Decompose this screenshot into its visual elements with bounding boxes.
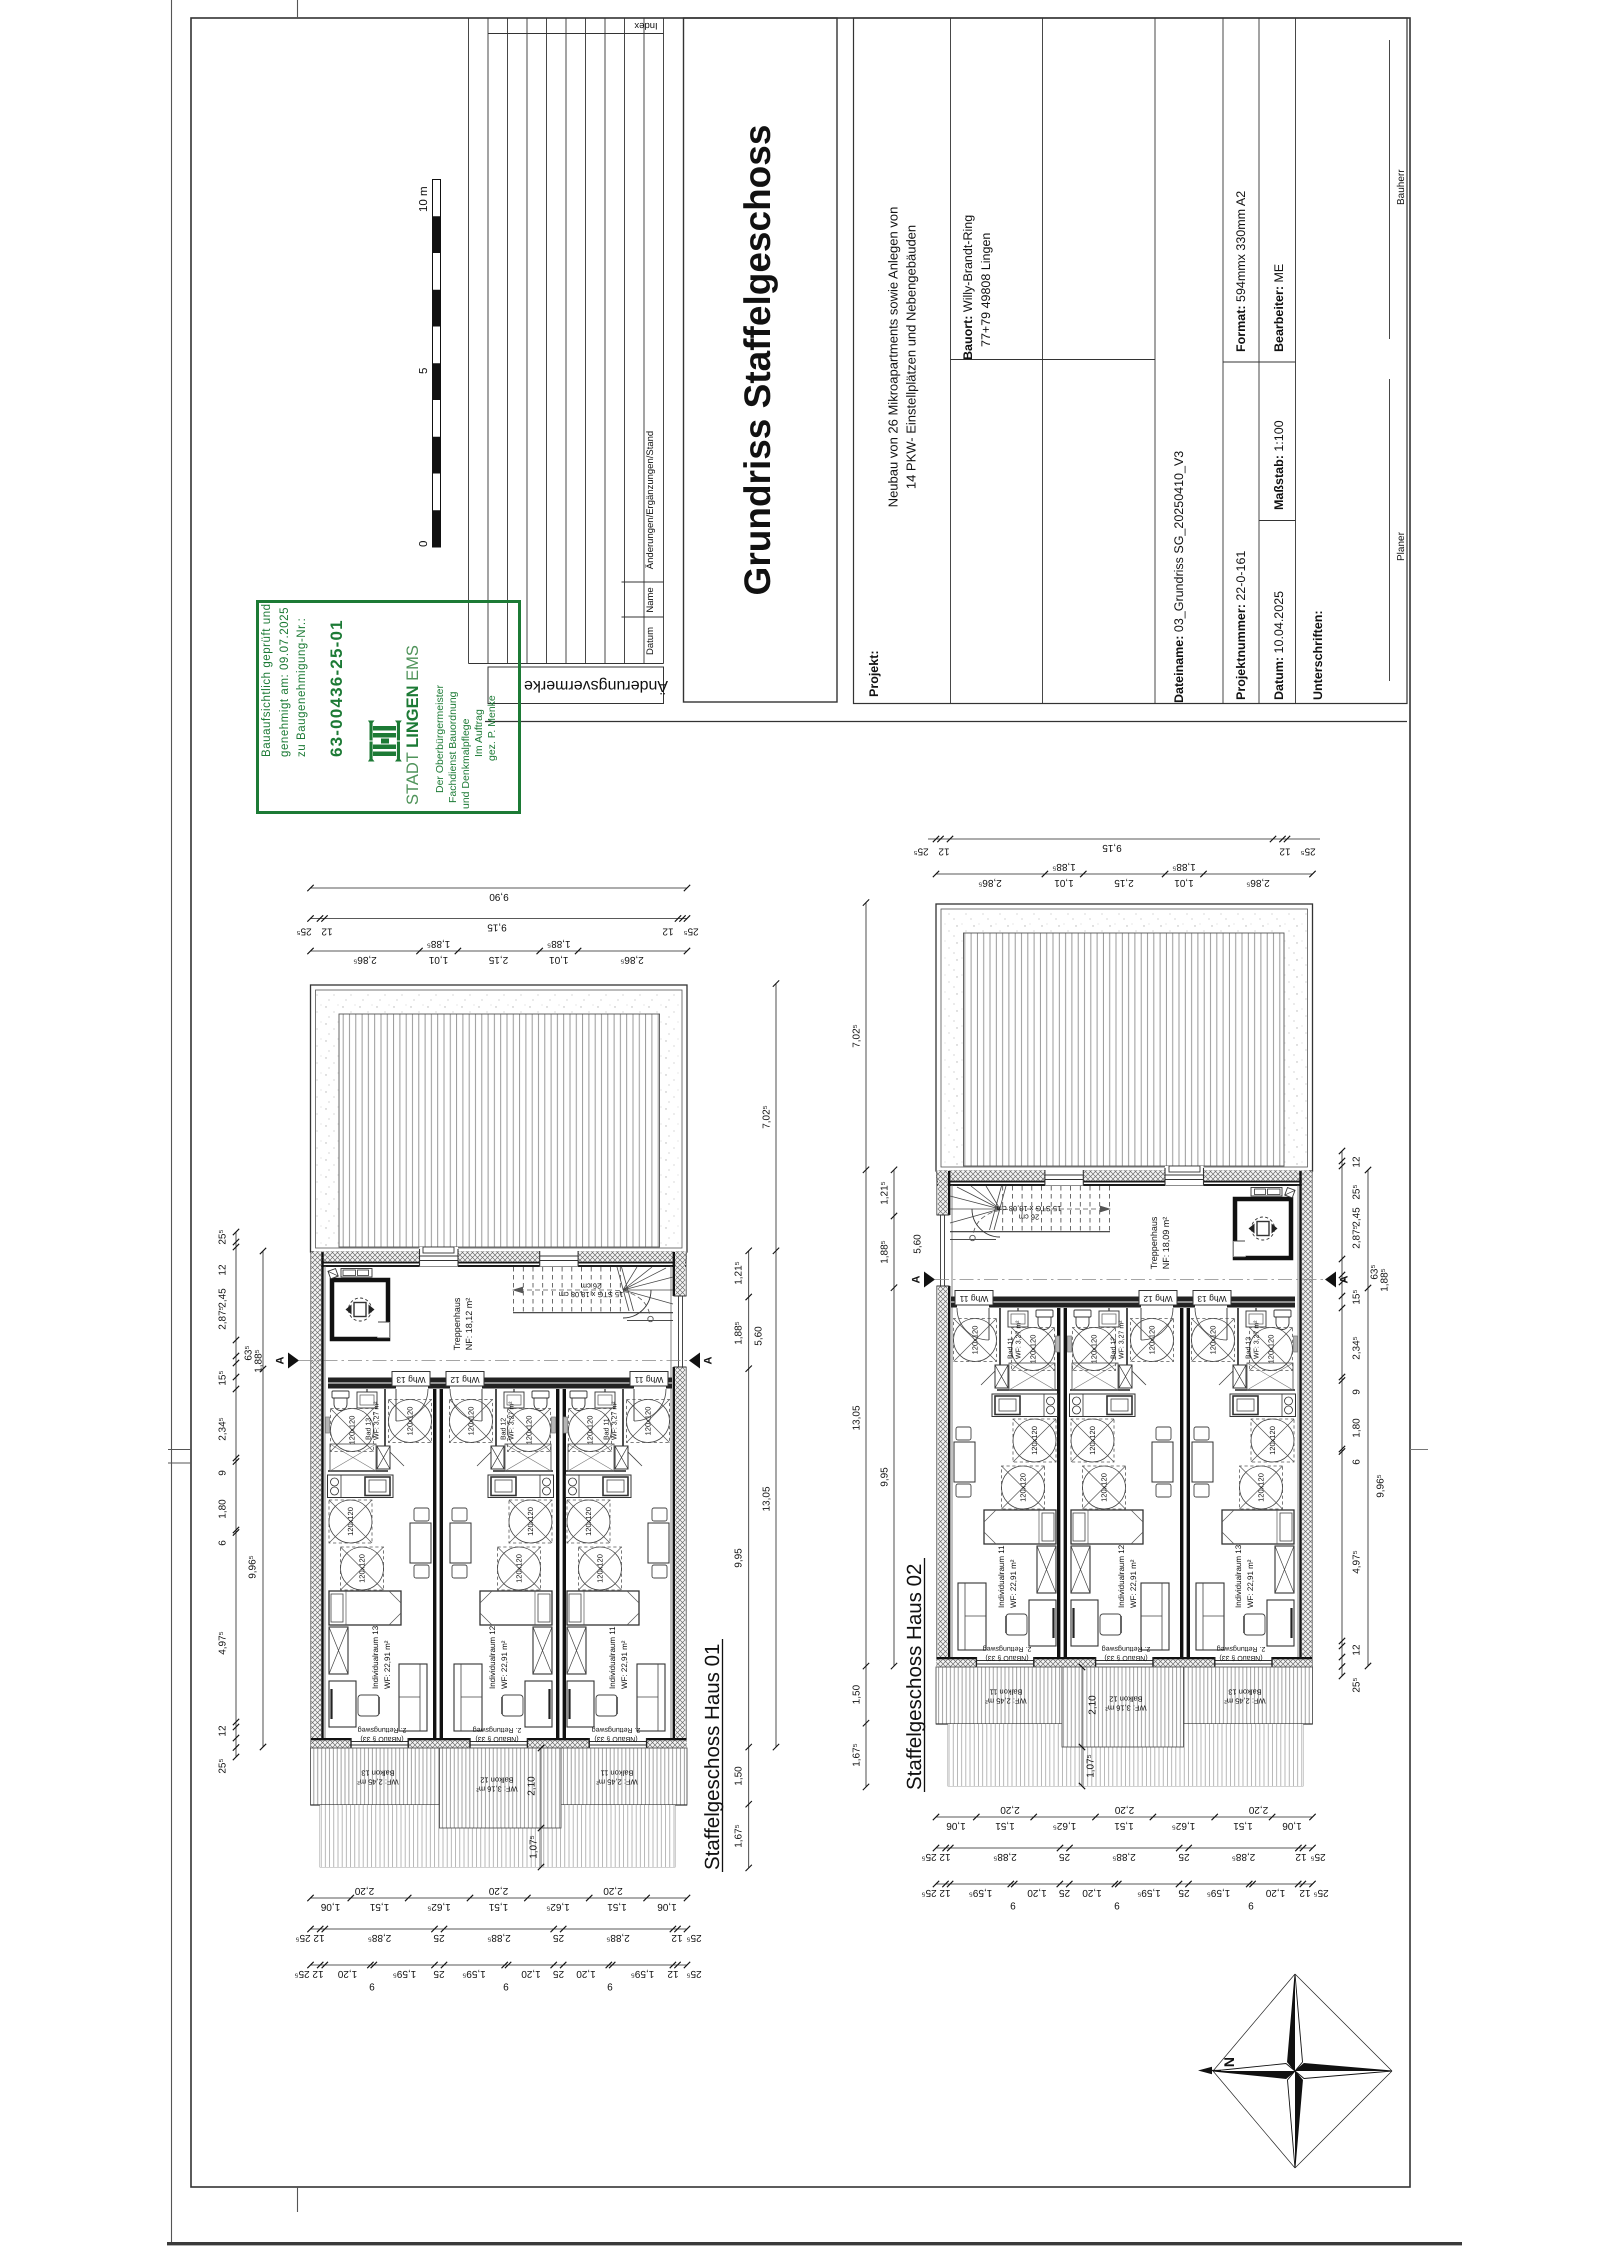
svg-text:NF: 18,12 m²: NF: 18,12 m² <box>464 1298 474 1351</box>
svg-text:25⁵: 25⁵ <box>217 1229 228 1244</box>
svg-text:Bad 12: Bad 12 <box>1110 1337 1118 1359</box>
svg-text:1,20: 1,20 <box>1265 1887 1285 1898</box>
svg-text:2,86⁵: 2,86⁵ <box>1246 877 1270 888</box>
svg-text:Whg 13: Whg 13 <box>1197 1294 1227 1304</box>
svg-text:1,88⁵: 1,88⁵ <box>427 938 451 949</box>
svg-text:1,06: 1,06 <box>657 1901 677 1912</box>
svg-text:1,59⁵: 1,59⁵ <box>1207 1887 1231 1898</box>
svg-text:Individualraum 13: Individualraum 13 <box>1234 1544 1243 1608</box>
svg-text:2,20: 2,20 <box>1000 1804 1020 1815</box>
svg-text:25: 25 <box>1178 1887 1190 1898</box>
svg-text:Individualraum 12: Individualraum 12 <box>1117 1544 1126 1608</box>
svg-text:Dateiname: 03_Grundriss SG_202: Dateiname: 03_Grundriss SG_20250410_V3 <box>1172 451 1186 703</box>
svg-text:1,07⁵: 1,07⁵ <box>1085 1754 1096 1778</box>
svg-text:1,06: 1,06 <box>320 1901 340 1912</box>
svg-text:120x120: 120x120 <box>466 1407 475 1436</box>
svg-text:(NBauO § 33): (NBauO § 33) <box>1104 1654 1147 1662</box>
svg-text:2,34⁵: 2,34⁵ <box>217 1417 228 1441</box>
svg-text:5,60: 5,60 <box>753 1326 764 1346</box>
svg-text:26 cm: 26 cm <box>581 1281 601 1290</box>
svg-text:2,88⁵: 2,88⁵ <box>1232 1851 1256 1862</box>
svg-text:1,06: 1,06 <box>1282 1820 1302 1831</box>
svg-text:25⁵: 25⁵ <box>217 1758 228 1773</box>
svg-text:12: 12 <box>1351 1644 1362 1656</box>
svg-text:Balkon 13: Balkon 13 <box>361 1769 394 1778</box>
svg-text:2,88⁵: 2,88⁵ <box>487 1932 511 1943</box>
svg-text:2,15: 2,15 <box>1114 877 1134 888</box>
svg-text:120x120: 120x120 <box>970 1326 979 1355</box>
svg-text:9: 9 <box>607 1980 613 1991</box>
svg-text:WF: 3,16 m²: WF: 3,16 m² <box>476 1785 518 1794</box>
svg-text:Balkon 12: Balkon 12 <box>1109 1695 1142 1704</box>
svg-text:1,50: 1,50 <box>851 1684 862 1704</box>
svg-text:1,62⁵: 1,62⁵ <box>1172 1820 1196 1831</box>
svg-text:1,80: 1,80 <box>1351 1418 1362 1438</box>
svg-text:9: 9 <box>503 1980 509 1991</box>
svg-text:14 PKW- Einstellplätzen und Ne: 14 PKW- Einstellplätzen und Nebengebäude… <box>903 225 918 489</box>
svg-text:2,20: 2,20 <box>603 1885 623 1896</box>
svg-text:12: 12 <box>321 925 333 936</box>
svg-text:WF: 2,45 m²: WF: 2,45 m² <box>596 1778 638 1787</box>
svg-text:4,97⁵: 4,97⁵ <box>217 1631 228 1655</box>
svg-text:25⁵: 25⁵ <box>1300 845 1315 856</box>
svg-text:9,15: 9,15 <box>1102 842 1122 853</box>
svg-text:1,67⁵: 1,67⁵ <box>851 1743 862 1767</box>
svg-text:12: 12 <box>1279 845 1291 856</box>
svg-text:2,45: 2,45 <box>1351 1207 1362 1227</box>
svg-text:2,20: 2,20 <box>488 1885 508 1896</box>
svg-text:1,51: 1,51 <box>369 1901 389 1912</box>
svg-text:1,20: 1,20 <box>1082 1887 1102 1898</box>
svg-text:Treppenhaus: Treppenhaus <box>1149 1216 1159 1269</box>
svg-text:(NBauO § 33): (NBauO § 33) <box>1219 1654 1262 1662</box>
svg-text:1,20: 1,20 <box>1027 1887 1047 1898</box>
svg-text:120x120: 120x120 <box>347 1416 356 1445</box>
svg-text:120x120: 120x120 <box>1089 1335 1098 1364</box>
svg-text:1,88⁵: 1,88⁵ <box>1172 861 1196 872</box>
svg-text:Whg 11: Whg 11 <box>634 1375 663 1385</box>
svg-text:9,95: 9,95 <box>733 1548 744 1568</box>
svg-text:0: 0 <box>418 541 430 547</box>
svg-text:9: 9 <box>1010 1899 1016 1910</box>
svg-text:Maßstab: 1:100: Maßstab: 1:100 <box>1272 420 1286 510</box>
svg-text:25⁵: 25⁵ <box>686 1968 701 1979</box>
svg-text:2,86⁵: 2,86⁵ <box>620 954 644 965</box>
svg-text:Bad 13: Bad 13 <box>1245 1337 1253 1359</box>
svg-text:2,45: 2,45 <box>217 1288 228 1308</box>
svg-text:Bad 11: Bad 11 <box>603 1418 611 1440</box>
svg-text:25⁵: 25⁵ <box>296 925 311 936</box>
svg-text:2. Rettungsweg: 2. Rettungsweg <box>592 1726 641 1733</box>
svg-text:6: 6 <box>217 1540 228 1546</box>
svg-text:2,87⁵: 2,87⁵ <box>217 1306 228 1330</box>
svg-text:120x120: 120x120 <box>1256 1473 1265 1502</box>
svg-text:25⁵: 25⁵ <box>921 1851 936 1862</box>
svg-text:120x120: 120x120 <box>357 1554 366 1583</box>
svg-text:25: 25 <box>433 1932 445 1943</box>
svg-text:1,59⁵: 1,59⁵ <box>969 1887 993 1898</box>
svg-text:(NBauO § 33): (NBauO § 33) <box>360 1735 403 1743</box>
svg-text:120x120: 120x120 <box>346 1507 355 1536</box>
svg-text:2,34⁵: 2,34⁵ <box>1351 1336 1362 1360</box>
svg-text:13,05: 13,05 <box>761 1486 772 1511</box>
svg-text:25⁵: 25⁵ <box>686 1932 701 1943</box>
svg-text:1,88⁵: 1,88⁵ <box>1379 1268 1390 1292</box>
svg-text:WF: 22,91 m²: WF: 22,91 m² <box>1246 1559 1255 1608</box>
svg-text:13,05: 13,05 <box>851 1405 862 1430</box>
svg-text:Staffelgeschoss Haus 01: Staffelgeschoss Haus 01 <box>701 1644 724 1870</box>
svg-text:4,97⁵: 4,97⁵ <box>1351 1550 1362 1574</box>
svg-text:120x120: 120x120 <box>405 1407 414 1436</box>
svg-text:WF: 22,91 m²: WF: 22,91 m² <box>1009 1559 1018 1608</box>
svg-text:120x120: 120x120 <box>1030 1426 1039 1455</box>
svg-text:Individualraum 13: Individualraum 13 <box>371 1625 380 1689</box>
svg-text:N: N <box>1221 2057 1237 2067</box>
svg-text:2,88⁵: 2,88⁵ <box>606 1932 630 1943</box>
svg-text:2. Rettungsweg: 2. Rettungsweg <box>1217 1645 1266 1652</box>
svg-text:120x120: 120x120 <box>1147 1326 1156 1355</box>
svg-text:WF: 22,91 m²: WF: 22,91 m² <box>620 1640 629 1689</box>
svg-text:12: 12 <box>667 1968 679 1979</box>
svg-text:WF: 22,91 m²: WF: 22,91 m² <box>383 1640 392 1689</box>
svg-text:Whg 11: Whg 11 <box>959 1294 988 1304</box>
svg-text:2,86⁵: 2,86⁵ <box>978 877 1002 888</box>
svg-text:Projekt:: Projekt: <box>867 650 881 697</box>
svg-text:9,95: 9,95 <box>879 1467 890 1487</box>
svg-text:25: 25 <box>433 1968 445 1979</box>
svg-text:12: 12 <box>312 1968 324 1979</box>
svg-text:12: 12 <box>662 925 674 936</box>
svg-text:Planer: Planer <box>1396 531 1407 561</box>
svg-text:Treppenhaus: Treppenhaus <box>452 1297 462 1350</box>
svg-text:2,88⁵: 2,88⁵ <box>993 1851 1017 1862</box>
svg-text:(NBauO § 33): (NBauO § 33) <box>594 1735 637 1743</box>
svg-text:12: 12 <box>217 1264 228 1276</box>
svg-text:25⁵: 25⁵ <box>294 1968 309 1979</box>
svg-text:1,62⁵: 1,62⁵ <box>1053 1820 1077 1831</box>
svg-text:12: 12 <box>938 845 950 856</box>
svg-text:1,59⁵: 1,59⁵ <box>393 1968 417 1979</box>
svg-text:NF: 18,09 m²: NF: 18,09 m² <box>1161 1217 1171 1270</box>
svg-text:9,90: 9,90 <box>489 891 509 902</box>
svg-text:9: 9 <box>217 1470 228 1476</box>
svg-text:1,20: 1,20 <box>337 1968 357 1979</box>
svg-text:Unterschriften:: Unterschriften: <box>1311 610 1325 700</box>
svg-text:Format: 594mmx 330mm A2: Format: 594mmx 330mm A2 <box>1234 191 1248 352</box>
svg-text:120x120: 120x120 <box>585 1416 594 1445</box>
svg-text:26 cm: 26 cm <box>1019 1212 1039 1221</box>
svg-text:A: A <box>703 1356 715 1364</box>
svg-text:9,15: 9,15 <box>487 921 507 932</box>
svg-text:Bauherr: Bauherr <box>1396 169 1407 205</box>
svg-text:2,10: 2,10 <box>526 1776 537 1796</box>
svg-text:Individualraum 11: Individualraum 11 <box>997 1545 1006 1608</box>
svg-text:1,59⁵: 1,59⁵ <box>462 1968 486 1979</box>
svg-text:2,88⁵: 2,88⁵ <box>1112 1851 1136 1862</box>
svg-text:120x120: 120x120 <box>1268 1426 1277 1455</box>
svg-text:25⁵: 25⁵ <box>913 845 928 856</box>
svg-text:2. Rettungsweg: 2. Rettungsweg <box>358 1726 407 1733</box>
svg-text:1,51: 1,51 <box>488 1901 508 1912</box>
svg-text:2,88⁵: 2,88⁵ <box>368 1932 392 1943</box>
svg-text:1,88⁵: 1,88⁵ <box>879 1240 890 1264</box>
svg-text:(NBauO § 33): (NBauO § 33) <box>475 1735 518 1743</box>
svg-text:Bad 11: Bad 11 <box>1007 1337 1015 1359</box>
svg-text:120x120: 120x120 <box>584 1507 593 1536</box>
svg-text:WF: 2,45 m²: WF: 2,45 m² <box>1224 1697 1266 1706</box>
svg-text:120x120: 120x120 <box>526 1507 535 1536</box>
svg-text:12: 12 <box>217 1725 228 1737</box>
svg-text:25⁵: 25⁵ <box>1351 1184 1362 1199</box>
svg-text:25⁵: 25⁵ <box>683 925 698 936</box>
svg-text:25: 25 <box>553 1932 565 1943</box>
svg-text:1,88⁵: 1,88⁵ <box>253 1349 264 1373</box>
svg-text:Individualraum 12: Individualraum 12 <box>488 1625 497 1689</box>
svg-text:120x120: 120x120 <box>1266 1335 1275 1364</box>
svg-text:WF: 3,27 m²: WF: 3,27 m² <box>509 1401 516 1440</box>
svg-text:9: 9 <box>1114 1899 1120 1910</box>
svg-text:120x120: 120x120 <box>524 1416 533 1445</box>
svg-text:25: 25 <box>553 1968 565 1979</box>
svg-text:7,02⁵: 7,02⁵ <box>851 1024 862 1048</box>
svg-text:1,88⁵: 1,88⁵ <box>733 1321 744 1345</box>
svg-text:Bad 13: Bad 13 <box>365 1418 373 1440</box>
svg-text:5,60: 5,60 <box>912 1234 923 1254</box>
svg-text:Balkon 12: Balkon 12 <box>480 1776 513 1785</box>
svg-text:Staffelgeschoss Haus 02: Staffelgeschoss Haus 02 <box>903 1564 926 1790</box>
svg-text:WF: 3,27 m²: WF: 3,27 m² <box>1119 1320 1126 1359</box>
svg-text:25⁵: 25⁵ <box>1310 1851 1325 1862</box>
svg-text:1,01: 1,01 <box>428 954 448 965</box>
svg-text:2,87⁵: 2,87⁵ <box>1351 1225 1362 1249</box>
svg-text:Bearbeiter: ME: Bearbeiter: ME <box>1272 264 1286 352</box>
svg-text:2,20: 2,20 <box>1248 1804 1268 1815</box>
svg-text:1,62⁵: 1,62⁵ <box>546 1901 570 1912</box>
svg-text:Neubau von 26 Mikroapartments: Neubau von 26 Mikroapartments sowie Anle… <box>885 207 900 508</box>
svg-text:1,01: 1,01 <box>549 954 569 965</box>
svg-text:120x120: 120x120 <box>1028 1335 1037 1364</box>
svg-text:25⁵: 25⁵ <box>295 1932 310 1943</box>
svg-text:10 m: 10 m <box>418 186 430 212</box>
svg-text:1,20: 1,20 <box>576 1968 596 1979</box>
svg-text:2,10: 2,10 <box>1087 1695 1098 1715</box>
svg-text:WF: 22,91 m²: WF: 22,91 m² <box>500 1640 509 1689</box>
svg-text:Individualraum 11: Individualraum 11 <box>608 1626 617 1689</box>
svg-text:1,06: 1,06 <box>946 1820 966 1831</box>
svg-text:1,88⁵: 1,88⁵ <box>1052 861 1076 872</box>
svg-text:A: A <box>275 1356 287 1364</box>
svg-text:1,59⁵: 1,59⁵ <box>1137 1887 1161 1898</box>
svg-text:12: 12 <box>1295 1851 1307 1862</box>
svg-text:25⁵: 25⁵ <box>1351 1677 1362 1692</box>
svg-text:25: 25 <box>1178 1851 1190 1862</box>
svg-text:1,21⁵: 1,21⁵ <box>733 1261 744 1285</box>
svg-text:Index: Index <box>634 20 657 31</box>
svg-text:12: 12 <box>939 1887 951 1898</box>
svg-text:1,21⁵: 1,21⁵ <box>879 1181 890 1205</box>
svg-text:WF: 3,27 m²: WF: 3,27 m² <box>374 1401 381 1440</box>
svg-text:Änderungsvermerke: Änderungsvermerke <box>524 677 668 695</box>
svg-text:1,01: 1,01 <box>1054 877 1074 888</box>
svg-text:2,20: 2,20 <box>354 1885 374 1896</box>
svg-text:(NBauO § 33): (NBauO § 33) <box>985 1654 1028 1662</box>
svg-text:2,20: 2,20 <box>1114 1804 1134 1815</box>
svg-text:A: A <box>911 1275 923 1283</box>
svg-text:15⁵: 15⁵ <box>217 1370 228 1385</box>
svg-text:120x120: 120x120 <box>1018 1473 1027 1502</box>
svg-text:12: 12 <box>1351 1156 1362 1168</box>
svg-text:2. Rettungsweg: 2. Rettungsweg <box>1102 1645 1151 1652</box>
svg-text:9: 9 <box>1351 1389 1362 1395</box>
svg-text:Änderungen/Ergänzungen/Stand: Änderungen/Ergänzungen/Stand <box>645 431 656 569</box>
svg-text:WF: 3,27 m²: WF: 3,27 m² <box>612 1401 619 1440</box>
svg-text:120x120: 120x120 <box>643 1407 652 1436</box>
svg-text:Projektnummer: 22-0-161: Projektnummer: 22-0-161 <box>1234 551 1248 700</box>
svg-text:Balkon 11: Balkon 11 <box>601 1769 634 1778</box>
svg-text:Whg 12: Whg 12 <box>450 1375 480 1385</box>
svg-text:120x120: 120x120 <box>514 1554 523 1583</box>
svg-text:1,67⁵: 1,67⁵ <box>733 1824 744 1848</box>
svg-text:120x120: 120x120 <box>1099 1473 1108 1502</box>
svg-text:Datum: Datum <box>645 627 656 655</box>
svg-text:1,50: 1,50 <box>733 1766 744 1786</box>
svg-text:2. Rettungsweg: 2. Rettungsweg <box>473 1726 522 1733</box>
svg-text:9,96⁵: 9,96⁵ <box>1375 1474 1386 1498</box>
svg-text:7,02⁵: 7,02⁵ <box>761 1105 772 1129</box>
svg-text:120x120: 120x120 <box>1208 1326 1217 1355</box>
svg-text:WF: 22,91 m²: WF: 22,91 m² <box>1129 1559 1138 1608</box>
svg-text:1,80: 1,80 <box>217 1499 228 1519</box>
svg-text:15 STG x 18,08 cm: 15 STG x 18,08 cm <box>997 1204 1062 1213</box>
svg-text:120x120: 120x120 <box>595 1554 604 1583</box>
svg-text:120x120: 120x120 <box>1088 1426 1097 1455</box>
svg-text:12: 12 <box>313 1932 325 1943</box>
svg-text:9: 9 <box>1248 1899 1254 1910</box>
svg-text:1,07⁵: 1,07⁵ <box>528 1835 539 1859</box>
svg-text:1,51: 1,51 <box>1233 1820 1253 1831</box>
svg-text:WF: 2,45 m²: WF: 2,45 m² <box>985 1697 1027 1706</box>
svg-text:5: 5 <box>418 368 430 374</box>
svg-text:WF: 2,45 m²: WF: 2,45 m² <box>357 1778 399 1787</box>
svg-text:2. Rettungsweg: 2. Rettungsweg <box>983 1645 1032 1652</box>
svg-text:1,51: 1,51 <box>607 1901 627 1912</box>
svg-text:Bad 12: Bad 12 <box>500 1418 508 1440</box>
svg-text:25: 25 <box>1059 1887 1071 1898</box>
svg-text:12: 12 <box>671 1932 683 1943</box>
svg-text:12: 12 <box>1299 1887 1311 1898</box>
svg-text:Datum: 10.04.2025: Datum: 10.04.2025 <box>1272 591 1286 700</box>
svg-text:9,96⁵: 9,96⁵ <box>247 1555 258 1579</box>
svg-text:Whg 12: Whg 12 <box>1143 1294 1173 1304</box>
svg-text:Whg 13: Whg 13 <box>396 1375 426 1385</box>
svg-text:25⁵: 25⁵ <box>921 1887 936 1898</box>
svg-text:WF: 3,16 m²: WF: 3,16 m² <box>1105 1704 1147 1713</box>
svg-text:77+79 49808 Lingen: 77+79 49808 Lingen <box>979 233 993 347</box>
svg-text:Grundriss Staffelgeschoss: Grundriss Staffelgeschoss <box>737 125 778 596</box>
svg-text:15⁵: 15⁵ <box>1351 1289 1362 1304</box>
svg-text:6: 6 <box>1351 1459 1362 1465</box>
svg-text:25: 25 <box>1059 1851 1071 1862</box>
svg-text:1,51: 1,51 <box>1114 1820 1134 1831</box>
svg-text:9: 9 <box>369 1980 375 1991</box>
svg-text:1,88⁵: 1,88⁵ <box>547 938 571 949</box>
svg-text:WF: 3,27 m²: WF: 3,27 m² <box>1254 1320 1261 1359</box>
svg-text:25⁵: 25⁵ <box>1313 1887 1328 1898</box>
svg-text:1,20: 1,20 <box>521 1968 541 1979</box>
svg-text:WF: 3,27 m²: WF: 3,27 m² <box>1016 1320 1023 1359</box>
svg-text:1,62⁵: 1,62⁵ <box>427 1901 451 1912</box>
svg-text:2,86⁵: 2,86⁵ <box>353 954 377 965</box>
svg-text:1,01: 1,01 <box>1174 877 1194 888</box>
svg-text:15 STG x 18,08 cm: 15 STG x 18,08 cm <box>559 1290 624 1299</box>
svg-text:Balkon 11: Balkon 11 <box>990 1688 1023 1697</box>
svg-text:Balkon 13: Balkon 13 <box>1228 1688 1261 1697</box>
svg-text:1,59⁵: 1,59⁵ <box>631 1968 655 1979</box>
svg-text:12: 12 <box>939 1851 951 1862</box>
svg-text:Bauort: Willy-Brandt-Ring: Bauort: Willy-Brandt-Ring <box>961 215 975 360</box>
svg-text:1,51: 1,51 <box>995 1820 1015 1831</box>
svg-text:Name: Name <box>645 587 656 612</box>
svg-text:2,15: 2,15 <box>488 954 508 965</box>
